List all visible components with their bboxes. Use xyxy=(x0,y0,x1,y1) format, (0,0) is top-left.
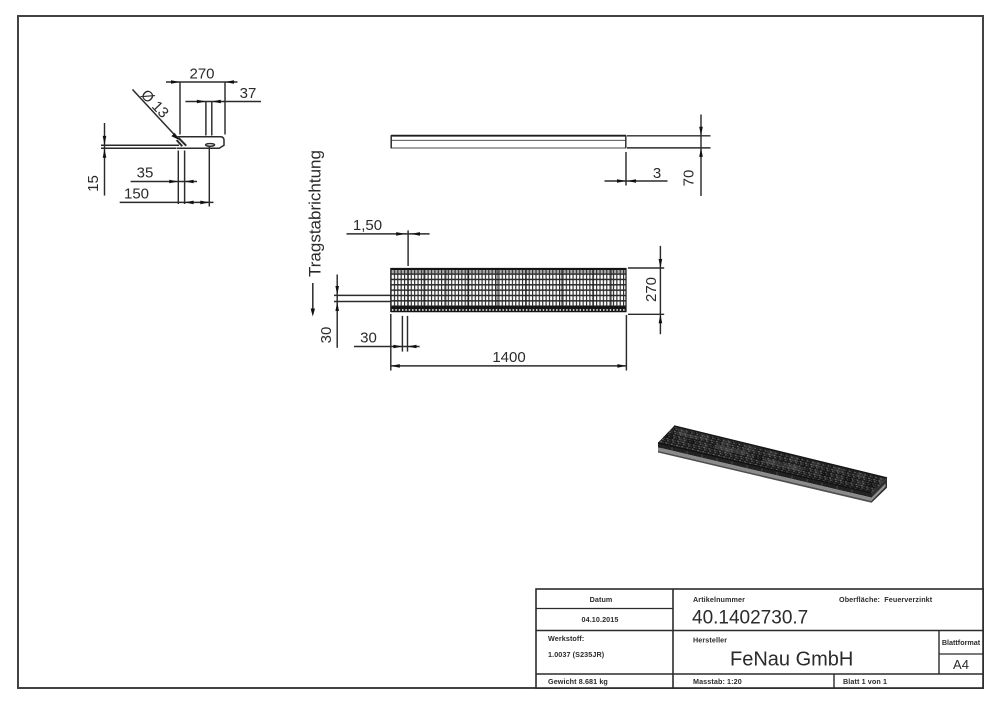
svg-text:30: 30 xyxy=(360,330,377,347)
svg-text:3: 3 xyxy=(653,165,661,182)
svg-text:Tragstabrichtung: Tragstabrichtung xyxy=(306,150,325,277)
svg-text:Masstab: 1:20: Masstab: 1:20 xyxy=(693,677,742,686)
svg-text:1400: 1400 xyxy=(492,349,525,366)
svg-text:35: 35 xyxy=(137,165,154,182)
svg-text:70: 70 xyxy=(681,170,698,187)
svg-text:FeNau GmbH: FeNau GmbH xyxy=(730,649,853,671)
svg-text:30: 30 xyxy=(318,327,335,344)
svg-text:Artikelnummer: Artikelnummer xyxy=(693,595,745,604)
svg-text:Datum: Datum xyxy=(590,595,613,604)
svg-text:Blatt 1 von 1: Blatt 1 von 1 xyxy=(843,677,887,686)
svg-text:37: 37 xyxy=(240,85,257,102)
svg-text:15: 15 xyxy=(85,175,102,192)
svg-text:Werkstoff:: Werkstoff: xyxy=(548,634,584,643)
svg-text:Blattformat: Blattformat xyxy=(942,638,981,647)
svg-text:Gewicht 8.681 kg: Gewicht 8.681 kg xyxy=(548,677,608,686)
svg-text:40.1402730.7: 40.1402730.7 xyxy=(692,608,808,629)
svg-text:270: 270 xyxy=(643,277,660,302)
svg-text:150: 150 xyxy=(124,185,149,202)
svg-text:1.0037 (S235JR): 1.0037 (S235JR) xyxy=(548,650,605,659)
svg-text:A4: A4 xyxy=(953,657,969,672)
svg-text:270: 270 xyxy=(189,66,214,83)
svg-text:1,50: 1,50 xyxy=(353,217,382,234)
svg-text:Oberfläche: Feuerverzinkt: Oberfläche: Feuerverzinkt xyxy=(839,595,933,604)
svg-text:Hersteller: Hersteller xyxy=(693,636,727,645)
svg-text:04.10.2015: 04.10.2015 xyxy=(582,615,619,624)
